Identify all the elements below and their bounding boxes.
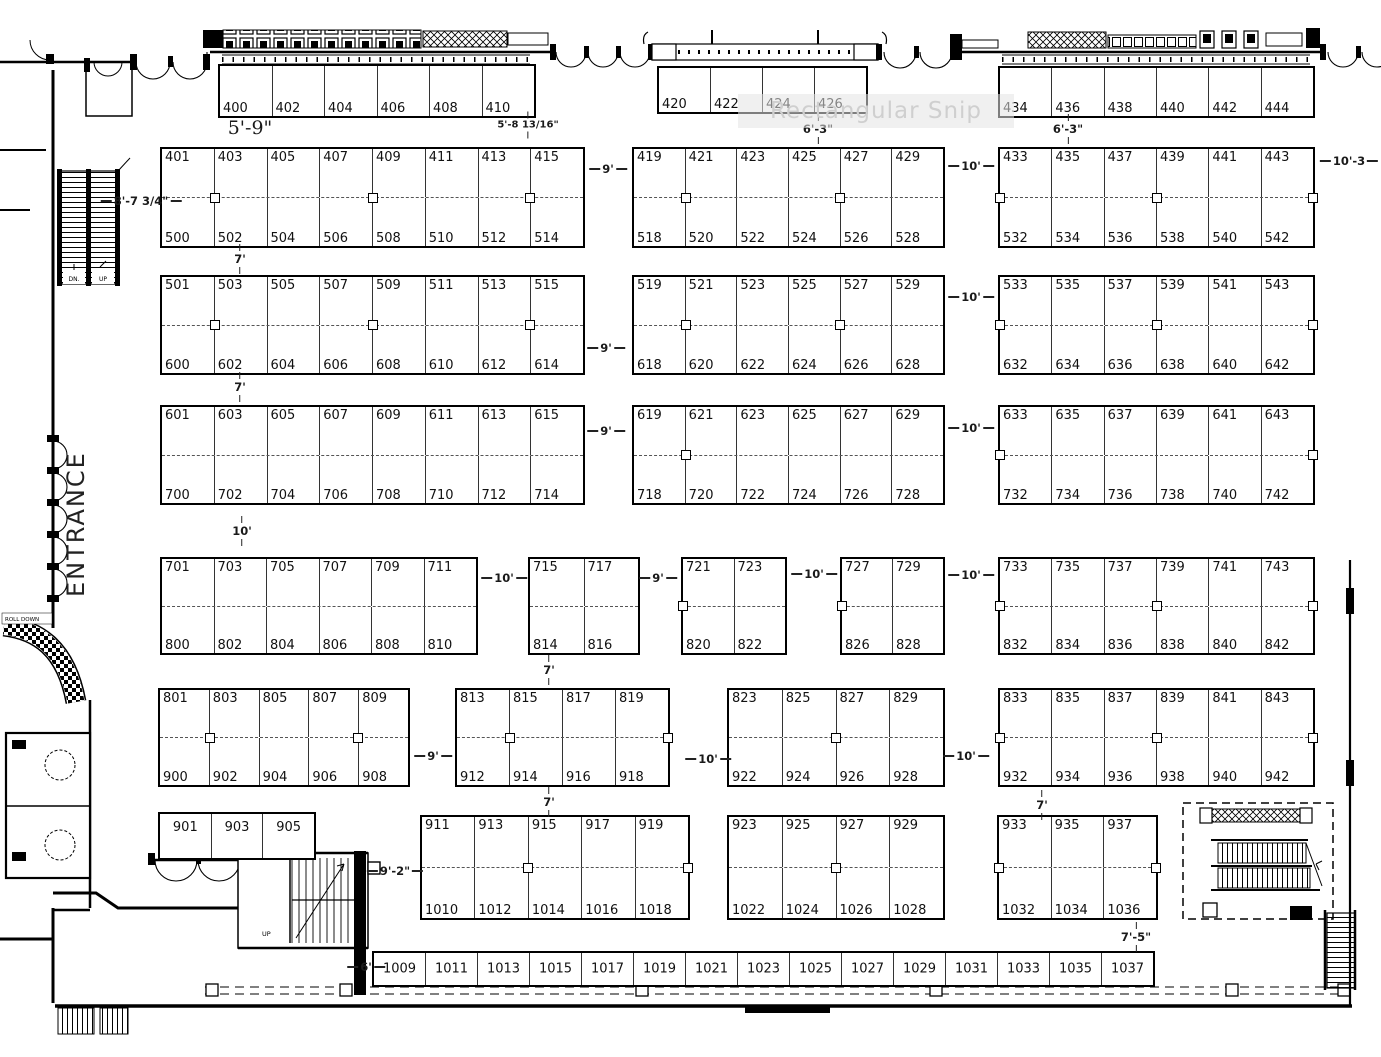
booth-number: 605	[271, 408, 296, 423]
booth-block: 715717814816	[528, 557, 640, 655]
booth-row: 901903905	[160, 814, 314, 858]
booth-number: 623	[740, 408, 765, 423]
booth-number: 609	[376, 408, 401, 423]
booth-number: 817	[566, 691, 591, 706]
booth-number: 908	[362, 770, 387, 785]
booth-cell: 933	[999, 817, 1051, 867]
booth-number: 742	[1265, 488, 1290, 503]
booth-cell: 727	[842, 559, 892, 606]
booth-cell: 615	[530, 407, 583, 455]
booth-number: 500	[165, 231, 190, 246]
booth-number: 1021	[695, 962, 728, 977]
booth-number: 406	[381, 101, 406, 116]
booth-cell: 1035	[1049, 953, 1101, 985]
booth-number: 601	[165, 408, 190, 423]
booth-cell: 627	[840, 407, 892, 455]
booth-cell: 415	[530, 149, 583, 197]
booth-cell: 917	[581, 817, 634, 867]
booth-row: 721723	[683, 559, 785, 607]
booth-number: 420	[662, 97, 687, 112]
booth-cell: 700	[162, 456, 214, 504]
utility-marker	[368, 193, 378, 203]
booth-cell: 922	[729, 738, 782, 785]
booth-number: 728	[895, 488, 920, 503]
booth-number: 403	[218, 150, 243, 165]
booth-row: 10101012101410161018	[422, 868, 688, 918]
booth-number: 613	[482, 408, 507, 423]
booth-cell: 924	[782, 738, 836, 785]
booth-number: 726	[844, 488, 869, 503]
booth-number: 800	[165, 638, 190, 653]
booth-number: 405	[271, 150, 296, 165]
booth-cell: 524	[788, 198, 840, 246]
booth-number: 541	[1212, 278, 1237, 293]
utility-marker	[831, 863, 841, 873]
booth-cell: 425	[788, 149, 840, 197]
booth-number: 804	[270, 638, 295, 653]
booth-number: 539	[1160, 278, 1185, 293]
booth-number: 916	[566, 770, 591, 785]
booth-cell: 623	[736, 407, 788, 455]
booth-number: 533	[1003, 278, 1028, 293]
booth-number: 1010	[425, 903, 458, 918]
dimension-label: 10'	[789, 567, 839, 581]
booth-cell: 708	[372, 456, 425, 504]
booth-cell: 408	[429, 66, 482, 116]
booth-cell: 538	[1156, 198, 1208, 246]
booth-number: 635	[1055, 408, 1080, 423]
booth-cell: 522	[736, 198, 788, 246]
booth-cell: 534	[1051, 198, 1103, 246]
booth-number: 709	[375, 560, 400, 575]
booth-row: 434436438440442444	[1000, 68, 1313, 116]
utility-marker	[523, 863, 533, 873]
booth-number: 735	[1055, 560, 1080, 575]
booth-number: 743	[1265, 560, 1290, 575]
booth-cell: 625	[788, 407, 840, 455]
booth-number: 511	[429, 278, 454, 293]
booth-number: 607	[323, 408, 348, 423]
dimension-label: 9'	[637, 571, 679, 585]
utility-marker	[1152, 601, 1162, 611]
booth-cell: 841	[1208, 690, 1260, 737]
booth-cell: 518	[634, 198, 685, 246]
floor-plan: DN. UP ROLL DOWN UP	[0, 0, 1381, 1057]
booth-cell: 737	[1104, 559, 1156, 606]
booth-number: 525	[792, 278, 817, 293]
booth-number: 829	[893, 691, 918, 706]
booth-cell: 535	[1051, 277, 1103, 325]
booth-number: 737	[1108, 560, 1133, 575]
booth-cell: 938	[1156, 738, 1208, 785]
booth-block: 633635637639641643732734736738740742	[998, 405, 1315, 505]
booth-cell: 709	[371, 559, 424, 606]
booth-number: 708	[376, 488, 401, 503]
booth-cell: 440	[1156, 68, 1208, 116]
booth-cell: 734	[1051, 456, 1103, 504]
booth-cell: 406	[377, 66, 430, 116]
booth-number: 1017	[591, 962, 624, 977]
booth-cell: 901	[160, 814, 211, 858]
booth-row: 715717	[530, 559, 638, 607]
watermark: Rectangular Snip	[738, 94, 1014, 128]
booth-cell: 717	[584, 559, 639, 606]
booth-cell: 703	[214, 559, 267, 606]
booth-cell: 503	[214, 277, 267, 325]
booth-cell: 400	[220, 66, 272, 116]
booth-number: 438	[1108, 101, 1133, 116]
booth-cell: 810	[424, 607, 477, 654]
booth-number: 520	[689, 231, 714, 246]
booth-number: 1013	[487, 962, 520, 977]
booth-cell: 420	[659, 68, 710, 112]
dimension-label: 6'-3"	[1053, 113, 1083, 145]
booth-number: 940	[1212, 770, 1237, 785]
booth-cell: 836	[1104, 607, 1156, 654]
booth-number: 633	[1003, 408, 1028, 423]
booth-number: 606	[323, 358, 348, 373]
booth-cell: 606	[319, 326, 372, 374]
booth-number: 626	[844, 358, 869, 373]
utility-marker	[525, 320, 535, 330]
booth-cell: 603	[214, 407, 267, 455]
booth-number: 413	[482, 150, 507, 165]
booth-cell: 906	[308, 738, 358, 785]
booth-block: 9239259279291022102410261028	[727, 815, 945, 920]
booth-cell: 419	[634, 149, 685, 197]
booth-cell: 439	[1156, 149, 1208, 197]
booth-row: 800802804806808810	[162, 607, 476, 654]
booth-number: 837	[1108, 691, 1133, 706]
booth-cell: 736	[1104, 456, 1156, 504]
booth-number: 926	[840, 770, 865, 785]
booth-number: 1027	[851, 962, 884, 977]
utility-marker	[681, 320, 691, 330]
booth-number: 706	[323, 488, 348, 503]
booth-cell: 904	[259, 738, 309, 785]
booth-cell: 935	[1051, 817, 1104, 867]
booth-number: 404	[328, 101, 353, 116]
booth-number: 711	[428, 560, 453, 575]
booth-cell: 405	[267, 149, 320, 197]
utility-marker	[210, 193, 220, 203]
booth-number: 519	[637, 278, 662, 293]
booth-cell: 533	[1000, 277, 1051, 325]
booth-cell: 915	[528, 817, 581, 867]
booth-number: 813	[460, 691, 485, 706]
booth-row: 814816	[530, 607, 638, 654]
booth-block: 400402404406408410	[218, 64, 536, 118]
booth-cell: 738	[1156, 456, 1208, 504]
booth-cell: 513	[478, 277, 531, 325]
booth-cell: 602	[214, 326, 267, 374]
booth-cell: 622	[736, 326, 788, 374]
booth-cell: 402	[272, 66, 325, 116]
booth-cell: 639	[1156, 407, 1208, 455]
booth-row: 832834836838840842	[1000, 607, 1313, 654]
dimension-label: 10'	[941, 749, 991, 763]
booth-number: 642	[1265, 358, 1290, 373]
utility-marker	[994, 863, 1004, 873]
booth-number: 521	[689, 278, 714, 293]
booth-cell: 1023	[737, 953, 789, 985]
dimension-label: 8'-7 3/4"	[99, 194, 184, 208]
booth-number: 906	[312, 770, 337, 785]
utility-marker	[1151, 863, 1161, 873]
booth-row: 923925927929	[729, 817, 943, 868]
booth-number: 839	[1160, 691, 1185, 706]
utility-marker	[995, 450, 1005, 460]
booth-row: 922924926928	[729, 738, 943, 785]
booth-number: 834	[1055, 638, 1080, 653]
booth-cell: 928	[889, 738, 943, 785]
utility-marker	[995, 601, 1005, 611]
utility-marker	[681, 450, 691, 460]
booth-block: 721723820822	[681, 557, 787, 655]
booth-number: 503	[218, 278, 243, 293]
booth-cell: 934	[1051, 738, 1103, 785]
booth-number: 913	[478, 818, 503, 833]
booth-cell: 840	[1208, 607, 1260, 654]
booth-cell: 433	[1000, 149, 1051, 197]
booth-cell: 838	[1156, 607, 1208, 654]
booth-number: 925	[786, 818, 811, 833]
booth-number: 915	[532, 818, 557, 833]
utility-marker	[1152, 733, 1162, 743]
booth-cell: 610	[425, 326, 478, 374]
booth-number: 807	[312, 691, 337, 706]
booth-number: 733	[1003, 560, 1028, 575]
dimension-label: 10'	[479, 571, 529, 585]
booth-number: 435	[1055, 150, 1080, 165]
booth-cell: 520	[685, 198, 737, 246]
booth-row: 718720722724726728	[634, 456, 943, 504]
booth-cell: 1011	[425, 953, 477, 985]
booth-cell: 624	[788, 326, 840, 374]
booth-cell: 634	[1051, 326, 1103, 374]
booth-cell: 619	[634, 407, 685, 455]
booth-cell: 640	[1208, 326, 1260, 374]
dimension-label: 9'	[585, 341, 627, 355]
booth-row: 103210341036	[999, 868, 1156, 918]
booth-cell: 404	[324, 66, 377, 116]
booth-number: 822	[738, 638, 763, 653]
booth-number: 938	[1160, 770, 1185, 785]
booth-number: 842	[1265, 638, 1290, 653]
booth-number: 1035	[1059, 962, 1092, 977]
booth-number: 816	[588, 638, 613, 653]
booth-cell: 825	[782, 690, 836, 737]
booth-number: 528	[895, 231, 920, 246]
booth-cell: 923	[729, 817, 782, 867]
booth-number: 504	[271, 231, 296, 246]
booth-number: 627	[844, 408, 869, 423]
booth-row: 833835837839841843	[1000, 690, 1313, 738]
booth-cell: 715	[530, 559, 584, 606]
booth-number: 505	[271, 278, 296, 293]
booth-cell: 505	[267, 277, 320, 325]
booth-number: 643	[1265, 408, 1290, 423]
booth-number: 513	[482, 278, 507, 293]
booth-number: 740	[1212, 488, 1237, 503]
utility-marker	[837, 601, 847, 611]
utility-marker	[210, 320, 220, 330]
booth-cell: 423	[736, 149, 788, 197]
dimension-label: 7'	[543, 654, 555, 686]
dimension-label: 9'	[587, 162, 629, 176]
booth-number: 415	[534, 150, 559, 165]
booth-number: 736	[1108, 488, 1133, 503]
booth-number: 810	[428, 638, 453, 653]
booth-number: 904	[263, 770, 288, 785]
booth-block: 833835837839841843932934936938940942	[998, 688, 1315, 787]
dimension-label: 7'	[543, 786, 555, 818]
booth-cell: 829	[889, 690, 943, 737]
booth-cell: 801	[160, 690, 209, 737]
booth-cell: 919	[635, 817, 688, 867]
booth-number: 932	[1003, 770, 1028, 785]
booth-number: 1033	[1007, 962, 1040, 977]
booth-cell: 506	[319, 198, 372, 246]
booth-cell: 1012	[474, 868, 527, 918]
booth-cell: 726	[840, 456, 892, 504]
booth-cell: 401	[162, 149, 214, 197]
booth-block: 901903905	[158, 812, 316, 860]
booth-block: 519521523525527529618620622624626628	[632, 275, 945, 375]
booth-number: 933	[1002, 818, 1027, 833]
booth-cell: 802	[214, 607, 267, 654]
utility-marker	[678, 601, 688, 611]
escalator-up-label: UP	[99, 276, 107, 283]
booth-cell: 1036	[1103, 868, 1156, 918]
booth-cell: 605	[267, 407, 320, 455]
booth-row: 500502504506508510512514	[162, 198, 583, 246]
booth-cell: 515	[530, 277, 583, 325]
booth-number: 942	[1265, 770, 1290, 785]
booth-row: 801803805807809	[160, 690, 408, 738]
booth-cell: 403	[214, 149, 267, 197]
booth-block: 533535537539541543632634636638640642	[998, 275, 1315, 375]
booth-cell: 918	[615, 738, 668, 785]
booth-cell: 435	[1051, 149, 1103, 197]
booth-cell: 532	[1000, 198, 1051, 246]
booth-row: 401403405407409411413415	[162, 149, 583, 198]
booth-block: 6016036056076096116136157007027047067087…	[160, 405, 585, 505]
booth-cell: 642	[1261, 326, 1313, 374]
booth-cell: 815	[509, 690, 562, 737]
booth-number: 936	[1108, 770, 1133, 785]
dimension-label: 10'	[946, 568, 996, 582]
booth-block: 813815817819912914916918	[455, 688, 670, 787]
booth-row: 933935937	[999, 817, 1156, 868]
booth-number: 509	[376, 278, 401, 293]
booth-cell: 636	[1104, 326, 1156, 374]
booth-row: 400402404406408410	[220, 66, 534, 116]
booth-number: 840	[1212, 638, 1237, 653]
dimension-label: 7'-5"	[1121, 921, 1151, 953]
booth-row: 1022102410261028	[729, 868, 943, 918]
booth-cell: 537	[1104, 277, 1156, 325]
booth-number: 527	[844, 278, 869, 293]
booth-row: 433435437439441443	[1000, 149, 1313, 198]
booth-number: 825	[786, 691, 811, 706]
booth-cell: 409	[372, 149, 425, 197]
booth-cell: 1024	[782, 868, 836, 918]
booth-cell: 723	[734, 559, 786, 606]
booth-cell: 612	[478, 326, 531, 374]
booth-cell: 722	[736, 456, 788, 504]
booth-number: 712	[482, 488, 507, 503]
booth-number: 801	[163, 691, 188, 706]
booth-number: 618	[637, 358, 662, 373]
dimension-label: 6'	[345, 960, 387, 974]
utility-marker	[835, 193, 845, 203]
booth-number: 444	[1265, 101, 1290, 116]
booth-number: 914	[513, 770, 538, 785]
booth-number: 1012	[478, 903, 511, 918]
booth-cell: 1029	[893, 953, 945, 985]
booth-cell: 800	[162, 607, 214, 654]
booth-cell: 911	[422, 817, 474, 867]
booth-row: 619621623625627629	[634, 407, 943, 456]
booth-cell: 504	[267, 198, 320, 246]
booth-number: 433	[1003, 150, 1028, 165]
booth-cell: 705	[266, 559, 319, 606]
booth-cell: 724	[788, 456, 840, 504]
booth-number: 429	[895, 150, 920, 165]
booth-number: 734	[1055, 488, 1080, 503]
booth-cell: 807	[308, 690, 358, 737]
booth-cell: 932	[1000, 738, 1051, 785]
booth-number: 515	[534, 278, 559, 293]
booth-row: 823825827829	[729, 690, 943, 738]
booth-number: 408	[433, 101, 458, 116]
booth-number: 826	[845, 638, 870, 653]
booth-row: 600602604606608610612614	[162, 326, 583, 374]
dimension-label: 7'	[1036, 789, 1048, 821]
booth-row: 813815817819	[457, 690, 668, 738]
booth-block: 1009101110131015101710191021102310251027…	[372, 951, 1155, 987]
booth-cell: 1031	[945, 953, 997, 985]
booth-cell: 514	[530, 198, 583, 246]
dimension-label: 10'-3	[1318, 154, 1380, 168]
booth-number: 1014	[532, 903, 565, 918]
booth-cell: 609	[372, 407, 425, 455]
booth-row: 727729	[842, 559, 943, 607]
booth-number: 604	[271, 358, 296, 373]
booth-cell: 903	[211, 814, 263, 858]
booth-cell: 525	[788, 277, 840, 325]
booth-number: 529	[895, 278, 920, 293]
booth-number: 721	[686, 560, 711, 575]
utility-marker	[505, 733, 515, 743]
booth-row: 518520522524526528	[634, 198, 943, 246]
booth-number: 612	[482, 358, 507, 373]
booth-number: 1015	[539, 962, 572, 977]
booth-cell: 411	[425, 149, 478, 197]
booth-number: 518	[637, 231, 662, 246]
booth-block: 619621623625627629718720722724726728	[632, 405, 945, 505]
booth-cell: 437	[1104, 149, 1156, 197]
booth-number: 1032	[1002, 903, 1035, 918]
dimension-label: 9'	[585, 424, 627, 438]
booth-row: 632634636638640642	[1000, 326, 1313, 374]
booth-number: 1024	[786, 903, 819, 918]
booth-number: 808	[375, 638, 400, 653]
booth-cell: 832	[1000, 607, 1051, 654]
booth-cell: 843	[1261, 690, 1313, 737]
booth-number: 522	[740, 231, 765, 246]
